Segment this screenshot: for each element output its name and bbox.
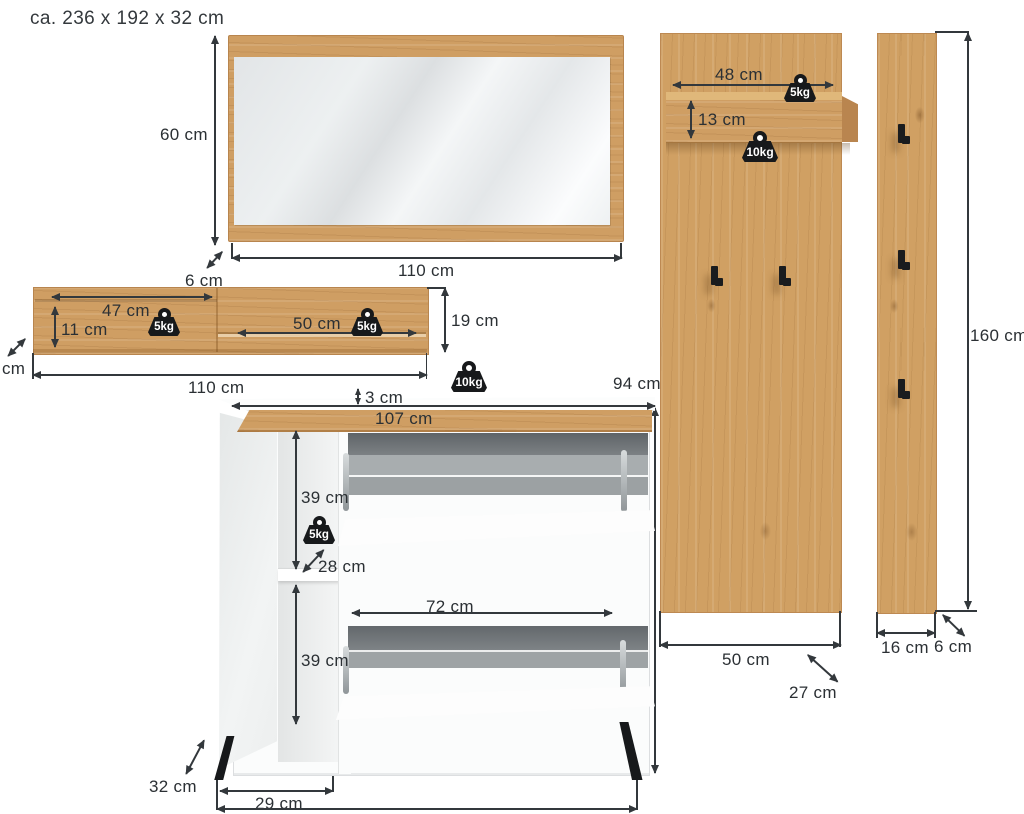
cabinet-shelf-depth-label: 28 cm bbox=[318, 557, 366, 577]
cabinet-depth-label: 32 cm bbox=[149, 777, 197, 797]
dim-arrow-shelf-width bbox=[33, 374, 427, 376]
cabinet-upper-flap-slat bbox=[348, 477, 648, 495]
coat-hook bbox=[711, 266, 718, 285]
dim-arrow-panel-shelf-height bbox=[690, 101, 692, 138]
dim-arrow-panel-width bbox=[660, 644, 841, 646]
dim-arrow-door-width bbox=[220, 790, 333, 792]
coat-hook bbox=[898, 250, 905, 269]
weight-icon-5kg: 5kg bbox=[303, 516, 335, 544]
mirror-glass bbox=[234, 57, 610, 225]
cabinet-upper-flap-slat bbox=[348, 455, 648, 477]
cabinet-wood-top bbox=[237, 410, 652, 432]
dim-arrow-shelf-inner-height bbox=[54, 307, 56, 347]
cabinet-lower-flap-slat bbox=[348, 650, 648, 668]
extension-line bbox=[332, 776, 334, 792]
weight-ring bbox=[753, 131, 767, 145]
cabinet-top-slab bbox=[218, 397, 655, 411]
dim-arrow-flap-width bbox=[352, 612, 612, 614]
panel-depth-label: 27 cm bbox=[789, 683, 837, 703]
narrow-panel-height-label: 160 cm bbox=[970, 326, 1024, 346]
dim-arrow-narrow-panel-depth bbox=[942, 614, 965, 636]
panel-width-label: 50 cm bbox=[722, 650, 770, 670]
extension-line bbox=[935, 610, 977, 612]
shelf-height-label: 19 cm bbox=[451, 311, 499, 331]
dim-arrow-mirror-width bbox=[232, 257, 622, 259]
shelf-width-label: 110 cm bbox=[188, 378, 244, 398]
weight-icon-5kg: 5kg bbox=[148, 308, 180, 336]
dim-arrow-cabinet-depth bbox=[185, 740, 204, 774]
dim-arrow-mirror-depth bbox=[206, 251, 222, 268]
panel-shelf-width-label: 48 cm bbox=[715, 65, 763, 85]
wall-shelf-bottom-edge bbox=[33, 349, 427, 353]
cabinet-lower-flap-interior bbox=[348, 626, 648, 650]
weight-ring bbox=[794, 74, 807, 87]
mirror-width-label: 110 cm bbox=[398, 261, 454, 281]
shelf-inner-height-label: 11 cm bbox=[61, 320, 108, 340]
dim-arrow-cabinet-top-thickness bbox=[357, 389, 359, 404]
upper-compartment-label: 39 cm bbox=[301, 488, 349, 508]
coat-rack-panel-narrow bbox=[877, 33, 937, 614]
cabinet-open-door bbox=[216, 410, 280, 774]
dim-arrow-cabinet-overall-width bbox=[217, 808, 637, 810]
mirror-height-label: 60 cm bbox=[160, 125, 208, 145]
cabinet-inner-width-label: 107 cm bbox=[375, 409, 433, 429]
coat-hook bbox=[779, 266, 786, 285]
weight-ring bbox=[313, 516, 326, 529]
weight-icon-5kg: 5kg bbox=[351, 308, 383, 336]
weight-ring bbox=[361, 308, 374, 321]
cabinet-open-compartment bbox=[278, 430, 340, 762]
weight-icon-5kg: 5kg bbox=[784, 74, 816, 102]
lower-compartment-label: 39 cm bbox=[301, 651, 349, 671]
flap-hinge-arm bbox=[620, 640, 626, 695]
cabinet-height-label: 94 cm bbox=[613, 374, 661, 394]
dim-arrow-panel-depth bbox=[807, 654, 838, 682]
dim-arrow-shelf-height bbox=[444, 288, 446, 352]
dim-arrow-mirror-height bbox=[214, 36, 216, 245]
wall-shelf-divider bbox=[216, 288, 218, 352]
dim-arrow-shelf-depth bbox=[7, 338, 25, 356]
weight-icon-10kg: 10kg bbox=[451, 361, 487, 392]
cabinet-upper-flap-interior bbox=[348, 433, 648, 455]
shelf-inner-width-label: 47 cm bbox=[102, 301, 150, 321]
narrow-panel-depth-label: 6 cm bbox=[934, 637, 972, 657]
dim-arrow-upper-compartment bbox=[295, 431, 297, 569]
dim-arrow-cabinet-height bbox=[654, 408, 656, 773]
dim-arrow-narrow-panel-width bbox=[877, 632, 935, 634]
coat-hook bbox=[898, 124, 905, 143]
dim-arrow-narrow-panel-height bbox=[967, 33, 969, 609]
weight-ring bbox=[158, 308, 171, 321]
dim-arrow-shelf-inner-width bbox=[52, 296, 212, 298]
weight-icon-10kg: 10kg bbox=[742, 131, 778, 162]
coat-hook bbox=[898, 379, 905, 398]
shelf-right-width-label: 50 cm bbox=[293, 314, 341, 334]
dim-arrow-cabinet-inner-width bbox=[232, 405, 655, 407]
weight-ring bbox=[462, 361, 476, 375]
flap-width-label: 72 cm bbox=[426, 597, 474, 617]
narrow-panel-width-label: 16 cm bbox=[881, 638, 929, 658]
panel-shelf-height-label: 13 cm bbox=[698, 110, 746, 130]
door-width-label: 29 cm bbox=[255, 794, 303, 814]
wall-shelf-lip-highlight bbox=[218, 334, 426, 337]
flap-hinge-arm bbox=[621, 450, 627, 512]
panel-shelf-side bbox=[842, 96, 858, 142]
shelf-depth-unit-label: cm bbox=[2, 359, 25, 379]
dim-arrow-lower-compartment bbox=[295, 585, 297, 724]
furniture-dimension-diagram: ca. 236 x 192 x 32 cm 60 cm 110 cm 6 cm … bbox=[0, 0, 1024, 814]
overall-dimensions-label: ca. 236 x 192 x 32 cm bbox=[30, 8, 224, 30]
